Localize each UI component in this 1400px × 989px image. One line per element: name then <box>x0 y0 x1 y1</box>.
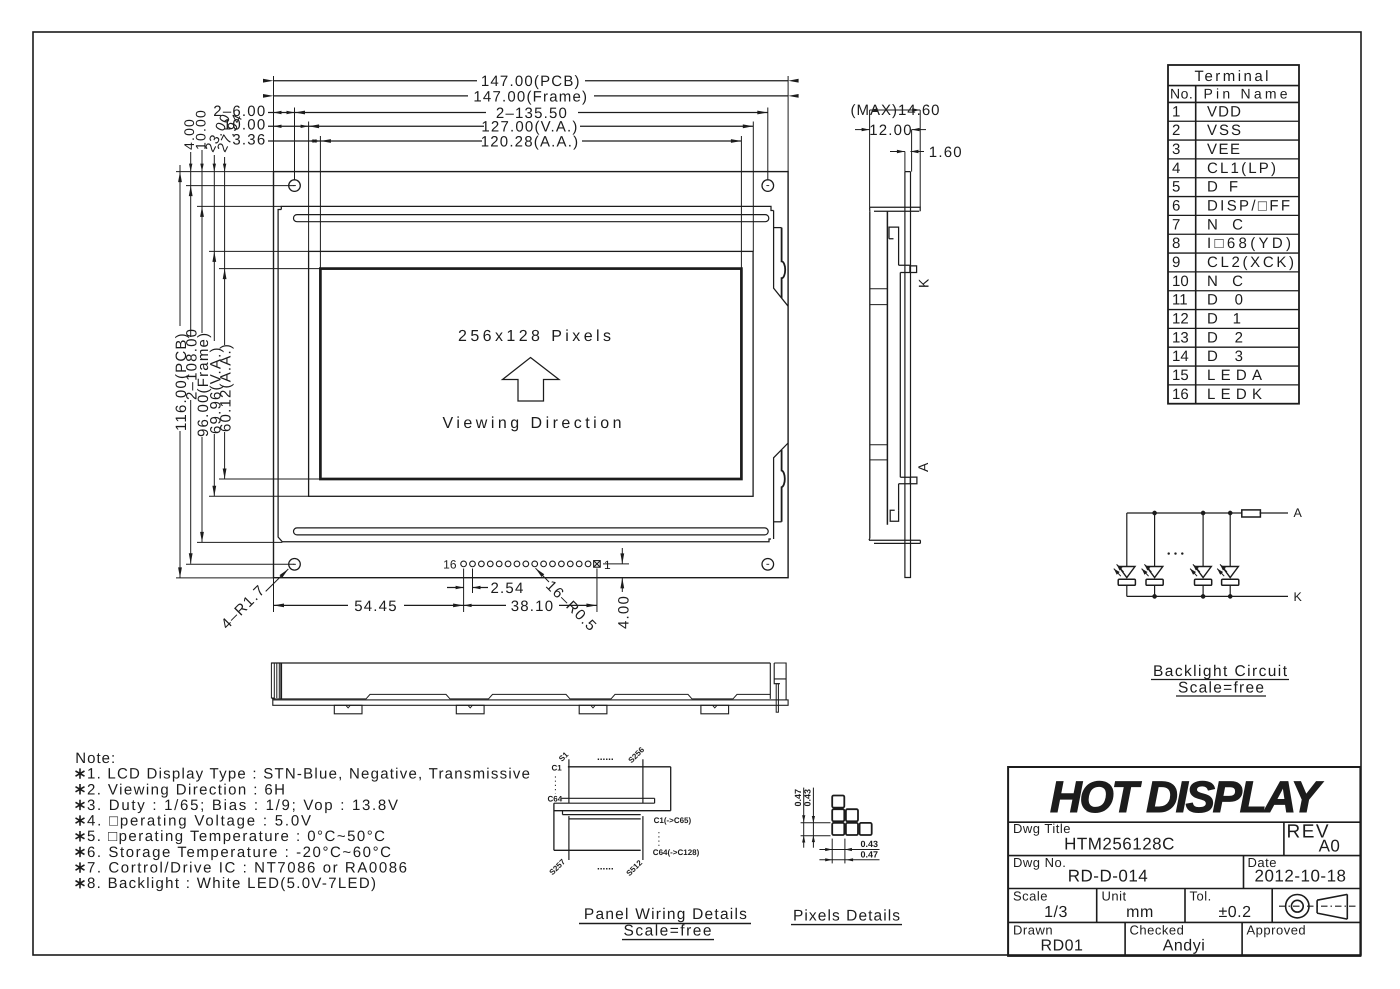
svg-text:RD01: RD01 <box>1041 938 1084 955</box>
svg-text:DISP/□FF: DISP/□FF <box>1207 198 1290 215</box>
svg-text:......: ...... <box>597 752 614 763</box>
svg-text:0.43: 0.43 <box>802 789 812 807</box>
svg-text:5: 5 <box>1172 179 1180 196</box>
svg-text:8. Backlight : White LED(5.0V-: 8. Backlight : White LED(5.0V-7LED) <box>87 875 376 892</box>
svg-text:A: A <box>915 462 931 472</box>
svg-text:HOT DISPLAY: HOT DISPLAY <box>1050 773 1324 822</box>
svg-text:4.00: 4.00 <box>615 595 632 629</box>
svg-text:16: 16 <box>1172 386 1189 403</box>
svg-text:RD-D-014: RD-D-014 <box>1068 867 1149 886</box>
svg-text:Note:: Note: <box>75 750 116 767</box>
svg-text:C64: C64 <box>548 794 563 803</box>
svg-text:K: K <box>916 278 932 288</box>
svg-text:K: K <box>1294 590 1303 604</box>
svg-text:10: 10 <box>1172 273 1189 290</box>
svg-text:VDD: VDD <box>1207 103 1241 120</box>
svg-text:9: 9 <box>1172 254 1180 271</box>
svg-text:(MAX)14.60: (MAX)14.60 <box>850 102 940 119</box>
svg-text:12: 12 <box>1172 311 1189 328</box>
svg-text:Drawn: Drawn <box>1013 923 1053 938</box>
svg-text:A0: A0 <box>1319 837 1341 856</box>
svg-text:Checked: Checked <box>1130 923 1185 938</box>
svg-text:120.28(A.A.): 120.28(A.A.) <box>481 133 580 150</box>
svg-text:0.43: 0.43 <box>861 839 879 849</box>
svg-text:8: 8 <box>1172 235 1180 252</box>
svg-text:3. Duty : 1/65; Bias : 1/9; Vo: 3. Duty : 1/65; Bias : 1/9; Vop : 13.8V <box>87 797 398 814</box>
svg-text:C1(->C65): C1(->C65) <box>654 816 692 825</box>
svg-text:1.60: 1.60 <box>929 144 963 161</box>
svg-text:0.47: 0.47 <box>861 849 879 859</box>
svg-text:5. □perating Temperature : 0°C: 5. □perating Temperature : 0°C~50°C <box>87 828 385 845</box>
svg-text:Scale: Scale <box>1013 889 1048 904</box>
svg-text:38.10: 38.10 <box>511 598 555 615</box>
svg-text:VEE: VEE <box>1207 141 1240 158</box>
svg-text:Pin Name: Pin Name <box>1204 86 1288 102</box>
svg-text:Scale=free: Scale=free <box>1178 679 1264 696</box>
svg-text:Panel Wiring Details: Panel Wiring Details <box>584 906 747 923</box>
svg-text:1: 1 <box>1172 103 1180 120</box>
svg-text:11: 11 <box>1172 292 1188 309</box>
svg-text:147.00(Frame): 147.00(Frame) <box>473 88 588 105</box>
svg-text:6. Storage Temperature : -20°C: 6. Storage Temperature : -20°C~60°C <box>87 844 391 861</box>
svg-text:Dwg Title: Dwg Title <box>1013 821 1071 836</box>
svg-text:CL2(XCK): CL2(XCK) <box>1207 254 1294 271</box>
svg-text:mm: mm <box>1126 904 1154 921</box>
svg-text:4. □perating Voltage : 5.0V: 4. □perating Voltage : 5.0V <box>87 813 311 830</box>
svg-text:2: 2 <box>1172 122 1180 139</box>
svg-text:Viewing Direction: Viewing Direction <box>443 415 622 432</box>
svg-text:7: 7 <box>1172 216 1180 233</box>
svg-text:4: 4 <box>1172 160 1180 177</box>
svg-text:HTM256128C: HTM256128C <box>1064 835 1175 854</box>
svg-text:1: 1 <box>604 558 611 572</box>
svg-text:15: 15 <box>1172 367 1189 384</box>
svg-text:Tol.: Tol. <box>1190 889 1212 904</box>
svg-text:1/3: 1/3 <box>1044 904 1068 921</box>
svg-text:Backlight Circuit: Backlight Circuit <box>1153 663 1288 680</box>
svg-text:Unit: Unit <box>1102 889 1127 904</box>
svg-text:C64(->C128): C64(->C128) <box>653 848 700 857</box>
svg-text:CL1(LP): CL1(LP) <box>1207 160 1276 177</box>
svg-text:16: 16 <box>443 557 457 571</box>
svg-text:C1: C1 <box>552 763 563 772</box>
svg-text:54.45: 54.45 <box>354 598 398 615</box>
svg-text:2.54: 2.54 <box>491 580 525 597</box>
svg-text:Andyi: Andyi <box>1163 938 1206 955</box>
svg-text:14: 14 <box>1172 348 1189 365</box>
svg-text:6: 6 <box>1172 198 1180 215</box>
svg-text:12.00: 12.00 <box>869 122 913 139</box>
svg-text:2. Viewing Direction : 6H: 2. Viewing Direction : 6H <box>87 781 285 798</box>
svg-text:3: 3 <box>1172 141 1180 158</box>
svg-text:1. LCD Display Type : STN-Blue: 1. LCD Display Type : STN-Blue, Negative… <box>87 766 530 783</box>
svg-text:......: ...... <box>597 862 614 873</box>
svg-text:Approved: Approved <box>1247 923 1307 938</box>
svg-text:Pixels Details: Pixels Details <box>793 908 900 925</box>
svg-text:2012-10-18: 2012-10-18 <box>1255 867 1347 886</box>
svg-text:Dwg No.: Dwg No. <box>1013 855 1066 870</box>
svg-text:13: 13 <box>1172 329 1189 346</box>
svg-text:0.47: 0.47 <box>793 789 803 807</box>
svg-text:Terminal: Terminal <box>1195 68 1269 85</box>
svg-text:Scale=free: Scale=free <box>624 923 712 940</box>
svg-text:No.: No. <box>1170 86 1193 102</box>
svg-text:±0.2: ±0.2 <box>1218 904 1251 921</box>
svg-text:A: A <box>1294 506 1303 520</box>
svg-text:60.12(A.A.): 60.12(A.A.) <box>218 343 235 432</box>
svg-text:VSS: VSS <box>1207 122 1241 139</box>
